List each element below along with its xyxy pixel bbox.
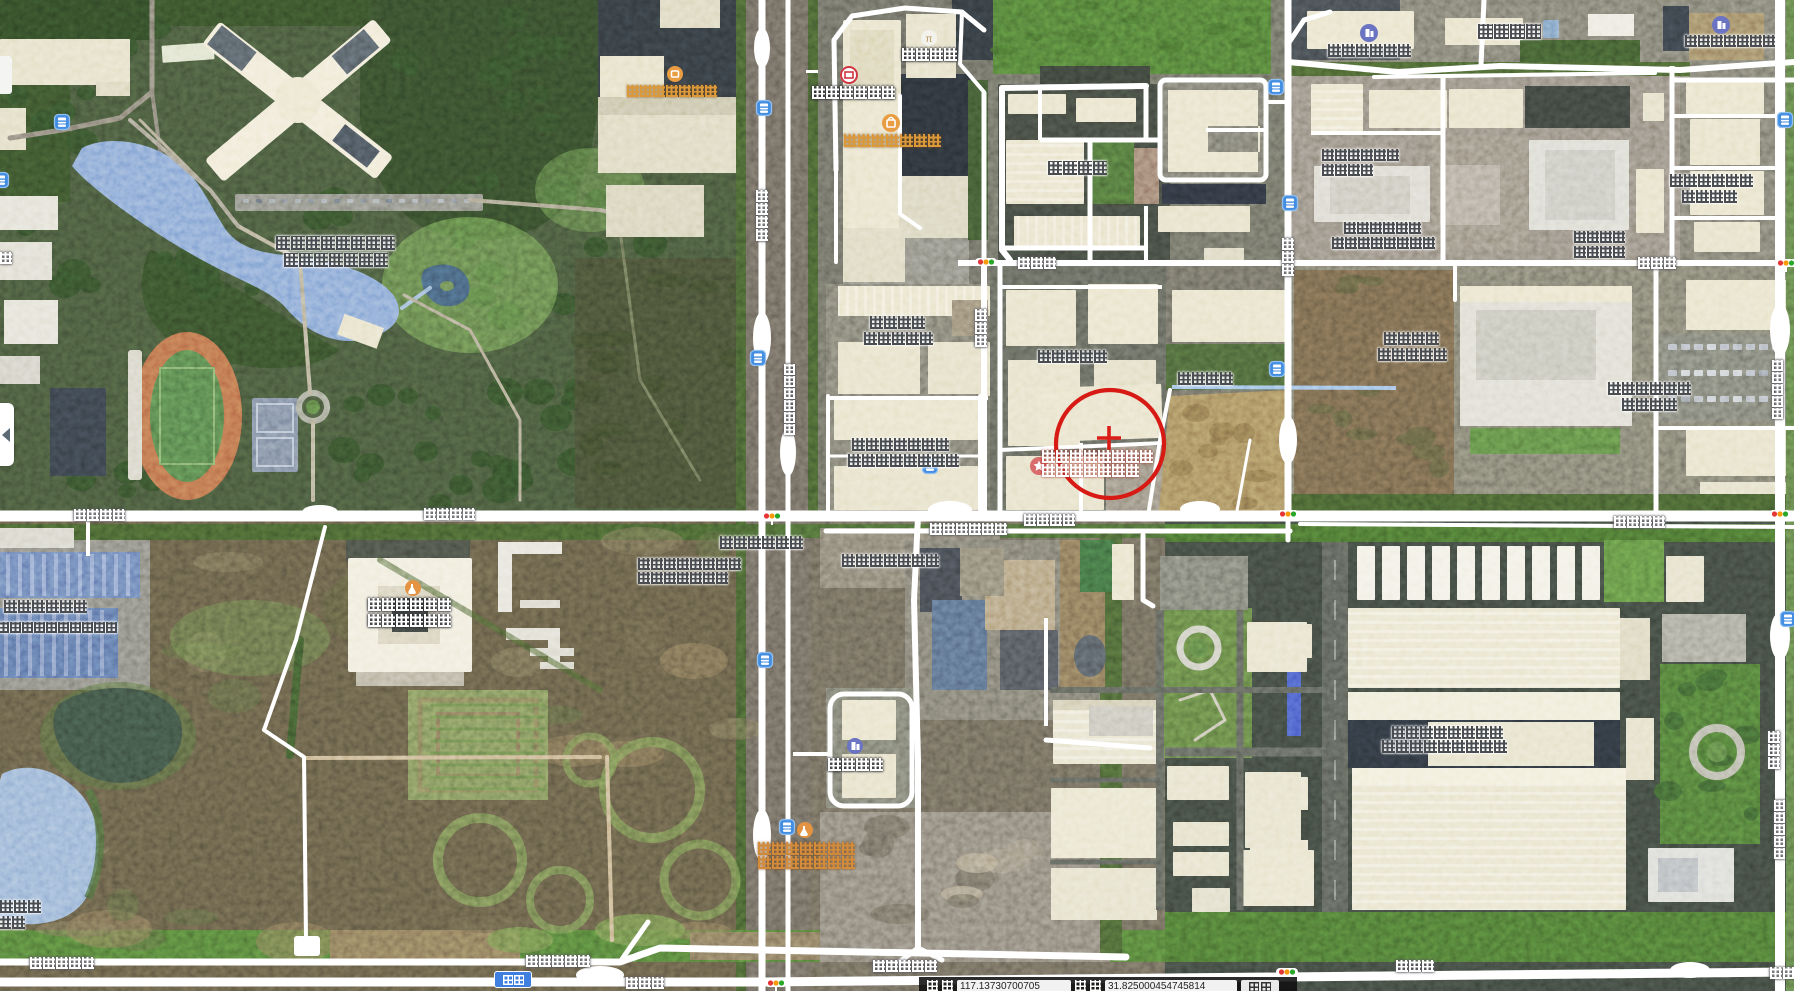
svg-text:π: π: [926, 34, 933, 45]
